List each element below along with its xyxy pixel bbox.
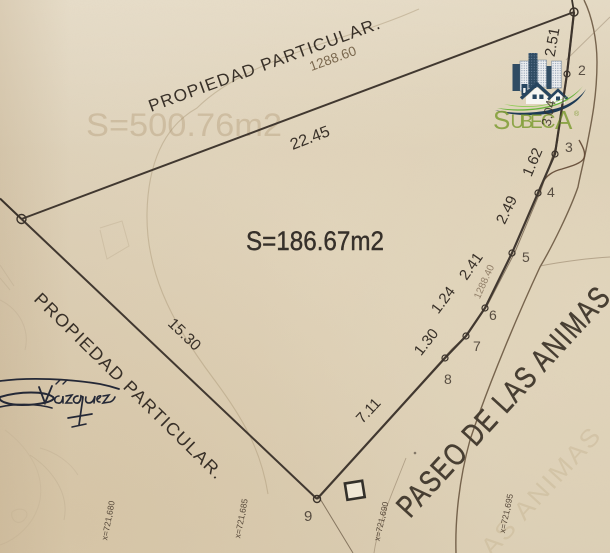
svg-text:®: ® <box>574 110 580 118</box>
svg-text:5: 5 <box>522 249 530 265</box>
svg-text:3: 3 <box>565 139 573 155</box>
svg-text:2: 2 <box>578 62 586 78</box>
svg-text:S=500.76m2: S=500.76m2 <box>86 107 282 143</box>
svg-text:S=186.67m2: S=186.67m2 <box>246 226 384 256</box>
svg-text:6: 6 <box>489 307 497 323</box>
svg-text:S: S <box>493 105 510 135</box>
svg-text:7: 7 <box>473 338 481 354</box>
svg-text:4: 4 <box>547 184 555 200</box>
svg-text:8: 8 <box>444 371 452 387</box>
svg-text:9: 9 <box>304 508 312 525</box>
